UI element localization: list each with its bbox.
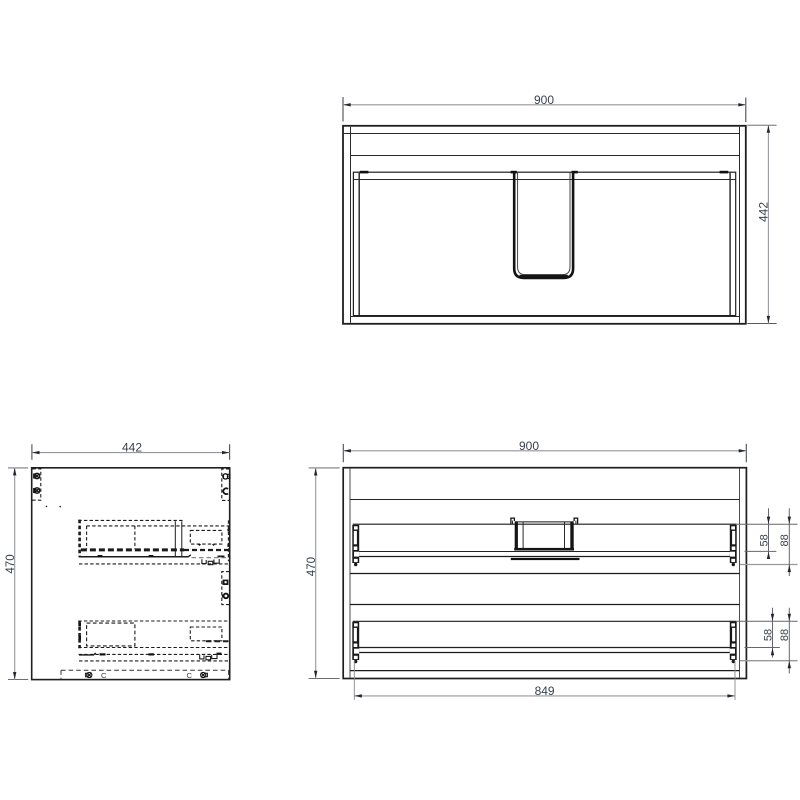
svg-text:470: 470 xyxy=(5,554,17,573)
svg-text:C: C xyxy=(186,671,192,680)
svg-text:88: 88 xyxy=(779,534,791,546)
svg-text:58: 58 xyxy=(762,629,774,641)
svg-text:470: 470 xyxy=(306,557,318,576)
svg-text:88: 88 xyxy=(779,629,791,641)
svg-text:C: C xyxy=(101,671,107,680)
svg-text:900: 900 xyxy=(519,439,539,453)
svg-text:849: 849 xyxy=(535,684,555,698)
svg-text:900: 900 xyxy=(534,93,554,107)
svg-text:442: 442 xyxy=(122,441,142,455)
svg-text:442: 442 xyxy=(757,202,771,222)
svg-text:58: 58 xyxy=(758,534,770,546)
